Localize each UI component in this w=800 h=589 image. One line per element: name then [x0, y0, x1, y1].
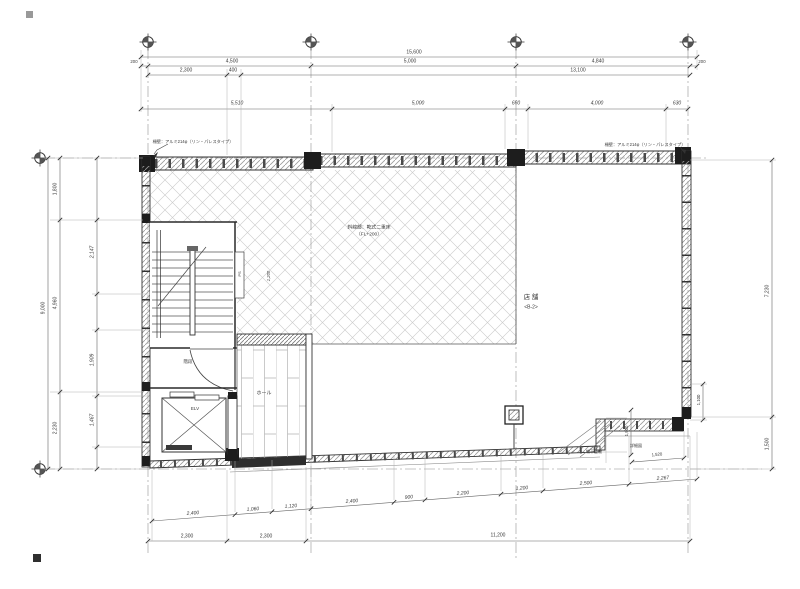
staircase: [148, 222, 244, 391]
sheet-mark-top-left: [26, 11, 33, 18]
columns: [505, 406, 523, 449]
elevator-shaft: [150, 388, 237, 456]
plan-linework: [0, 0, 800, 589]
floor-plan-sheet: 15,6002004,5005,0004,8402002,30040013,10…: [0, 0, 800, 589]
stair-door-swing: [190, 349, 233, 391]
sheet-mark-bottom-left: [33, 554, 41, 562]
hall-area: [225, 334, 312, 468]
